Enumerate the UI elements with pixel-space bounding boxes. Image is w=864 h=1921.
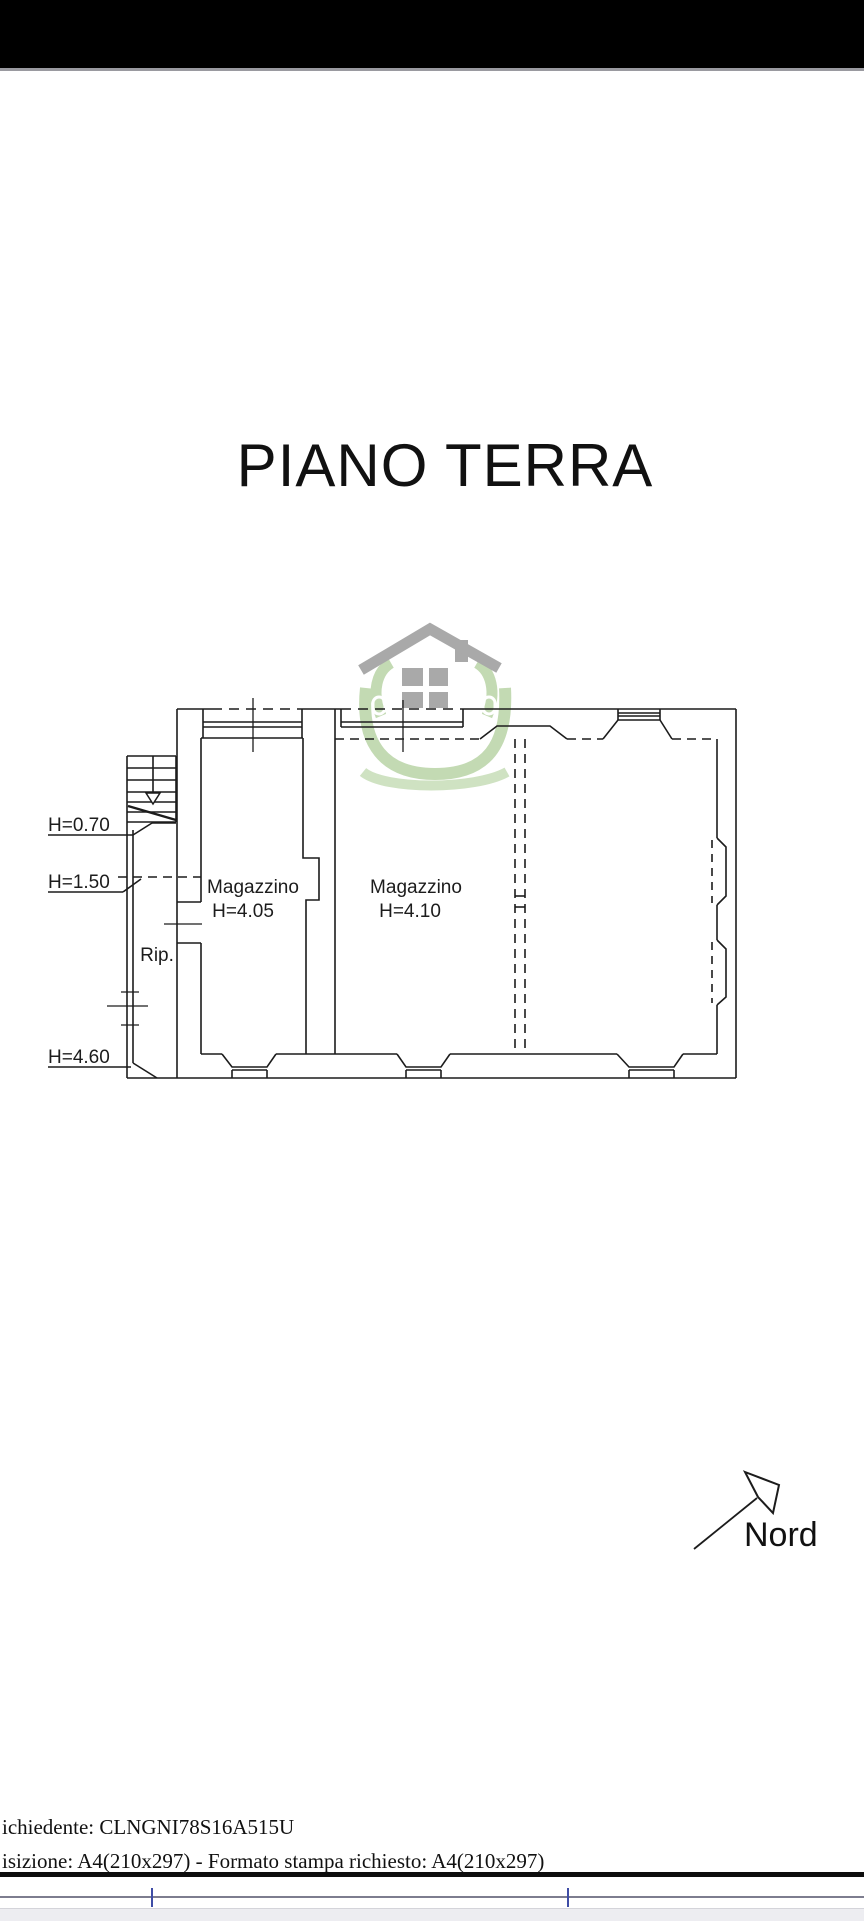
footer-requester-line: ichiedente: CLNGNI78S16A515U — [2, 1815, 294, 1840]
footer-format-line: isizione: A4(210x297) - Formato stampa r… — [2, 1849, 544, 1874]
ruler-tick — [567, 1888, 569, 1907]
room1-height: H=4.05 — [212, 901, 274, 923]
floor-plan-drawing — [0, 0, 864, 1920]
height-annotation-0-70: H=0.70 — [48, 815, 110, 837]
room2-name: Magazzino — [370, 877, 462, 899]
height-annotation-1-50: H=1.50 — [48, 872, 110, 894]
footer-divider — [0, 1872, 864, 1877]
ruler-line — [0, 1896, 864, 1898]
north-label: Nord — [744, 1516, 818, 1555]
room3-name: Rip. — [140, 945, 174, 967]
height-annotation-4-60: H=4.60 — [48, 1047, 110, 1069]
bottom-strip — [0, 1908, 864, 1921]
ruler-tick — [151, 1888, 153, 1907]
room2-height: H=4.10 — [379, 901, 441, 923]
watermark-logo — [361, 629, 507, 786]
room1-name: Magazzino — [207, 877, 299, 899]
